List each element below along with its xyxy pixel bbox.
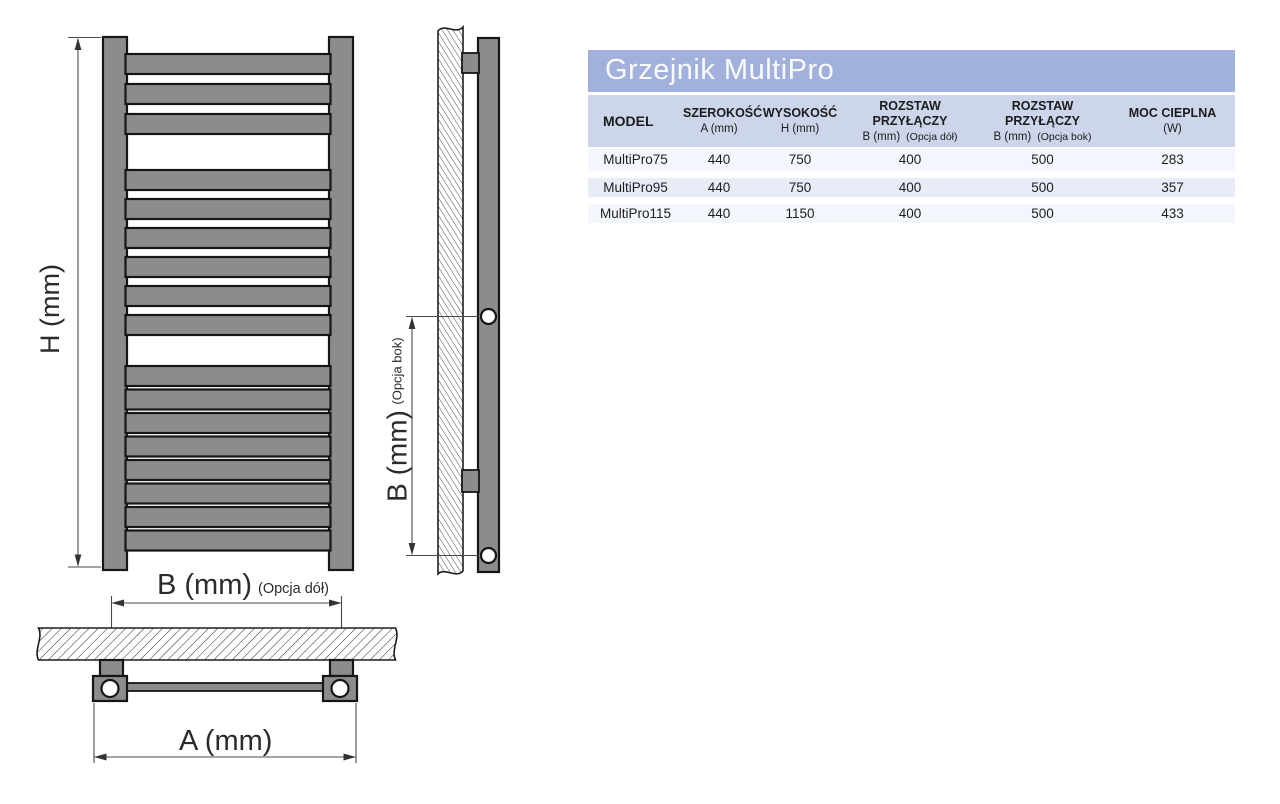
col-header-note: (Opcja bok) bbox=[1031, 131, 1091, 143]
radiator-side-profile bbox=[478, 38, 499, 572]
col-header-title: ROZSTAW PRZYŁĄCZY bbox=[1005, 99, 1080, 128]
cell-width: 440 bbox=[683, 148, 755, 174]
arrow-left-icon bbox=[94, 754, 107, 761]
cell-width: 440 bbox=[683, 174, 755, 200]
arrow-down-icon bbox=[409, 543, 416, 555]
arrow-down-icon bbox=[75, 555, 82, 567]
cell-spacing-side: 500 bbox=[975, 200, 1110, 226]
cell-width: 440 bbox=[683, 200, 755, 226]
height-dimension-label: H (mm) bbox=[35, 264, 65, 354]
cell-power: 357 bbox=[1110, 174, 1235, 200]
col-header-title: MODEL bbox=[603, 113, 654, 129]
table-row: MultiPro75 440 750 400 500 283 bbox=[588, 148, 1235, 174]
bottom-connections bbox=[93, 660, 357, 701]
wall-section bbox=[438, 27, 463, 574]
spec-table-title: Grzejnik MultiPro bbox=[588, 50, 1235, 92]
radiator-section-band bbox=[37, 628, 397, 660]
col-header-unit: A (mm) bbox=[700, 123, 737, 135]
arrow-up-icon bbox=[75, 38, 82, 50]
side-spacing-note: (Opcja bok) bbox=[390, 337, 405, 404]
arrow-up-icon bbox=[409, 317, 416, 329]
arrow-right-icon bbox=[329, 600, 342, 607]
width-dimension-label: A (mm) bbox=[179, 725, 272, 757]
left-pipe bbox=[100, 660, 123, 676]
drawing-canvas: H (mm) bbox=[0, 0, 588, 804]
cell-spacing-bottom: 400 bbox=[845, 200, 975, 226]
page: H (mm) bbox=[0, 0, 1280, 804]
col-header-unit: B (mm) bbox=[862, 131, 900, 143]
cell-power: 433 bbox=[1110, 200, 1235, 226]
col-header-unit: B (mm) bbox=[994, 131, 1032, 143]
arrow-left-icon bbox=[112, 600, 125, 607]
arrow-right-icon bbox=[344, 754, 357, 761]
right-valve-port bbox=[332, 680, 349, 697]
col-header-title: WYSOKOŚĆ bbox=[763, 106, 837, 120]
cell-power: 283 bbox=[1110, 148, 1235, 174]
right-rail bbox=[329, 37, 353, 570]
bottom-spacing-note: (Opcja dół) bbox=[258, 581, 329, 597]
cell-spacing-side: 500 bbox=[975, 148, 1110, 174]
col-header-unit: (W) bbox=[1163, 123, 1182, 135]
left-valve-port bbox=[102, 680, 119, 697]
col-header-unit: H (mm) bbox=[781, 123, 819, 135]
col-header-spacing-side: ROZSTAW PRZYŁĄCZY B (mm)(Opcja bok) bbox=[975, 95, 1110, 148]
col-header-title: SZEROKOŚĆ bbox=[683, 106, 762, 120]
left-rail bbox=[103, 37, 127, 570]
cell-spacing-side: 500 bbox=[975, 174, 1110, 200]
cell-height: 1150 bbox=[755, 200, 845, 226]
cell-model: MultiPro75 bbox=[588, 148, 683, 174]
col-header-spacing-bottom: ROZSTAW PRZYŁĄCZY B (mm)(Opcja dół) bbox=[845, 95, 975, 148]
front-view: H (mm) bbox=[35, 37, 353, 570]
rungs bbox=[126, 54, 331, 551]
col-header-width: SZEROKOŚĆ A (mm) bbox=[683, 95, 755, 148]
spec-table: MODEL SZEROKOŚĆ A (mm) WYSOKOŚĆ H (mm) R… bbox=[588, 95, 1235, 230]
side-view: B (mm) (Opcja bok) bbox=[382, 27, 500, 574]
col-header-note: (Opcja dół) bbox=[900, 131, 957, 143]
cell-spacing-bottom: 400 bbox=[845, 148, 975, 174]
cell-model: MultiPro115 bbox=[588, 200, 683, 226]
cell-height: 750 bbox=[755, 174, 845, 200]
lower-wall-bracket bbox=[462, 470, 479, 492]
side-spacing-label: B (mm) bbox=[382, 410, 413, 502]
table-row: MultiPro115 440 1150 400 500 433 bbox=[588, 200, 1235, 226]
radiator-technical-drawing: H (mm) bbox=[0, 0, 588, 804]
cell-model: MultiPro95 bbox=[588, 174, 683, 200]
upper-wall-bracket bbox=[462, 53, 479, 73]
side-spacing-dimension: B (mm) (Opcja bok) bbox=[382, 317, 480, 556]
bottom-view: B (mm) (Opcja dół) bbox=[37, 569, 397, 763]
col-header-height: WYSOKOŚĆ H (mm) bbox=[755, 95, 845, 148]
right-pipe bbox=[330, 660, 353, 676]
col-header-power: MOC CIEPLNA (W) bbox=[1110, 95, 1235, 148]
height-dimension: H (mm) bbox=[35, 38, 101, 568]
header-row: MODEL SZEROKOŚĆ A (mm) WYSOKOŚĆ H (mm) R… bbox=[588, 95, 1235, 148]
table-row: MultiPro95 440 750 400 500 357 bbox=[588, 174, 1235, 200]
spec-table-panel: Grzejnik MultiPro MODEL SZEROKOŚĆ A (mm)… bbox=[588, 50, 1235, 230]
cell-spacing-bottom: 400 bbox=[845, 174, 975, 200]
cell-height: 750 bbox=[755, 148, 845, 174]
upper-side-port bbox=[481, 309, 496, 324]
bottom-spacing-label: B (mm) bbox=[157, 569, 252, 601]
col-header-title: MOC CIEPLNA bbox=[1129, 106, 1217, 120]
col-header-title: ROZSTAW PRZYŁĄCZY bbox=[873, 99, 948, 128]
connecting-bar bbox=[127, 683, 323, 691]
col-header-model: MODEL bbox=[588, 95, 683, 148]
lower-side-port bbox=[481, 548, 496, 563]
width-dimension: A (mm) bbox=[94, 703, 356, 763]
